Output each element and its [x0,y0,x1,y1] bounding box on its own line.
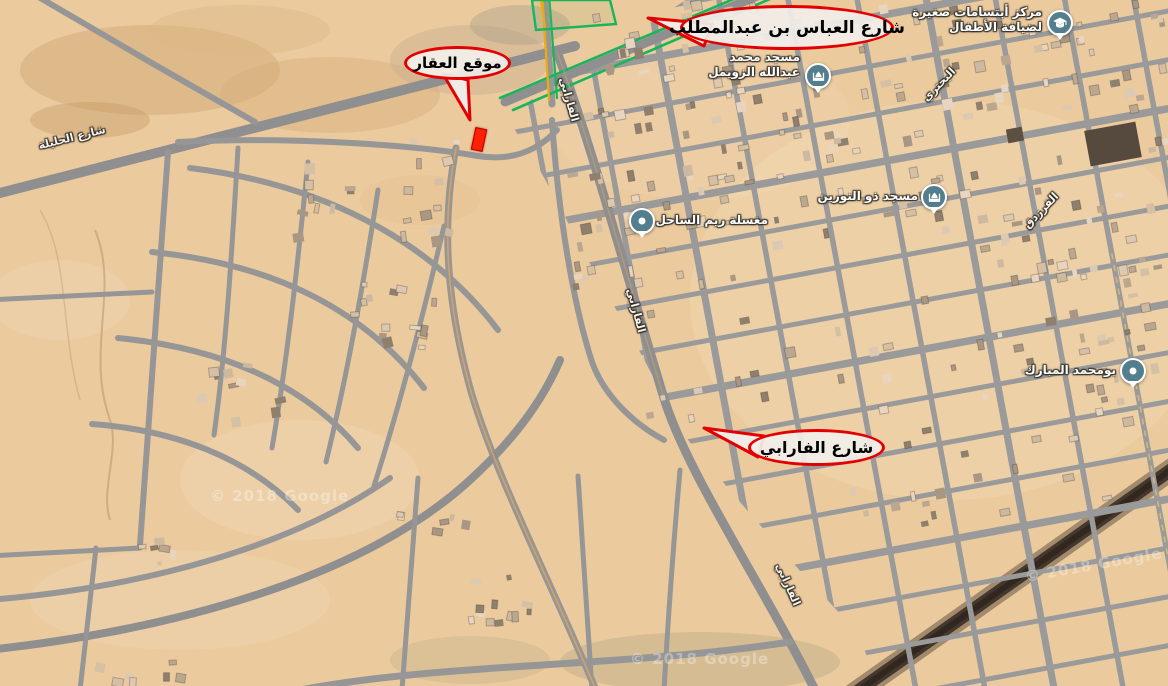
poi-label-mubarak: بومحمد المبارك [1024,363,1116,378]
poi-label-line: مسجد محمد [700,50,800,65]
circle-dot-icon [635,214,649,228]
callout-farabi-street: شارع الفارابي [748,429,885,466]
circle-dot-icon [1126,364,1140,378]
poi-label-education-center: مركز أبتسامات صغيرة لضيافة الأطفال [912,5,1042,35]
poi-pin-mosque-zuwaimel[interactable] [805,63,831,89]
poi-pin-mosque-nurayn[interactable] [921,184,947,210]
poi-label-line: مركز أبتسامات صغيرة [912,5,1042,20]
callout-abbas-street: شارع العباس بن عبدالمطلب [680,5,894,50]
callout-property-location: موقع العقار [404,46,511,80]
google-watermark: © 2018 Google [630,650,769,668]
poi-pin-education-center[interactable] [1047,10,1073,36]
poi-pin-mubarak[interactable] [1120,358,1146,384]
poi-label-line: لضيافة الأطفال [912,20,1042,35]
google-watermark: © 2018 Google [210,487,349,505]
mosque-icon [927,190,942,205]
poi-label-mosque-nurayn: مسجد ذو النورين [824,189,918,204]
mosque-icon [811,69,826,84]
satellite-basemap [0,0,1168,686]
poi-label-laundry: مغسلة ريم الساحل [658,213,768,228]
graduation-cap-icon [1052,15,1068,31]
poi-label-mosque-zuwaimel: مسجد محمد عبدالله الزويمل [700,50,800,80]
poi-pin-laundry[interactable] [629,208,655,234]
poi-label-line: عبدالله الزويمل [700,65,800,80]
map-canvas[interactable]: شارع الحليلة البحتري الفرزدق الفارابي ال… [0,0,1168,686]
